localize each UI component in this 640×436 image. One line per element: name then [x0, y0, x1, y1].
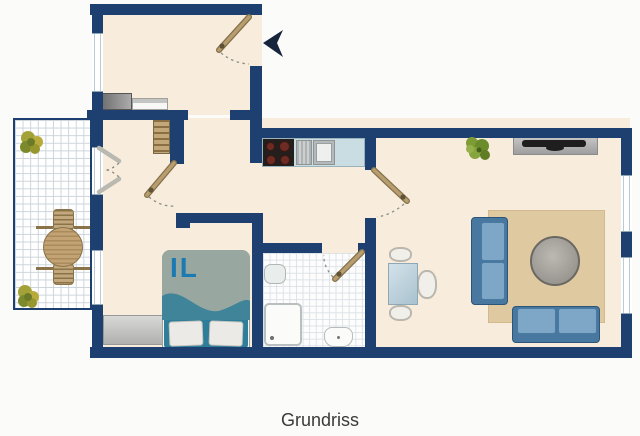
wall-hall-shelf — [170, 112, 184, 164]
burner — [266, 155, 276, 165]
wardrobe — [100, 93, 132, 110]
wall-living-left-lower — [365, 218, 376, 358]
wall-bath-left — [252, 213, 263, 358]
balcony-door-opening — [92, 147, 103, 195]
chair-armrest — [74, 226, 90, 229]
dining-chair — [389, 305, 412, 321]
living-window-south — [621, 257, 632, 314]
garden-table — [43, 227, 83, 267]
sink-basin — [316, 143, 332, 162]
dining-chair — [389, 247, 412, 262]
living-window-north — [621, 175, 632, 232]
floor-plan: IL — [0, 0, 640, 436]
sofa-horizontal-cushion — [517, 308, 556, 334]
bed-monogram: IL — [170, 252, 199, 284]
dresser — [103, 315, 163, 345]
entry-window — [92, 33, 103, 92]
bedroom-window — [92, 250, 103, 305]
shelf — [153, 119, 170, 154]
dining-table — [388, 263, 418, 305]
wall-bath-top — [263, 243, 322, 253]
wall-living-left-upper — [365, 128, 376, 170]
chair-armrest — [74, 267, 90, 270]
entrance-arrow-icon — [263, 30, 283, 57]
wall-entry-bottom-right — [230, 110, 262, 120]
toilet-drain — [337, 336, 340, 339]
wall-living-top — [376, 128, 632, 138]
wall-entry-top — [90, 4, 262, 15]
burner — [280, 155, 290, 165]
chair-armrest — [36, 226, 53, 229]
plan-caption: Grundriss — [0, 410, 640, 431]
chair-armrest — [36, 267, 53, 270]
wall-south — [90, 347, 632, 358]
burner — [279, 141, 290, 152]
wall-bedroom-top-corner — [176, 213, 190, 228]
sofa-vertical-cushion — [481, 222, 505, 261]
sofa-vertical-cushion — [481, 262, 505, 300]
burner — [266, 142, 275, 151]
sink-drainer — [296, 140, 312, 165]
sofa-horizontal-cushion — [558, 308, 597, 334]
tv-stand — [546, 145, 564, 151]
shower-drain — [270, 336, 274, 340]
bed-pillow — [209, 320, 244, 346]
dining-chair — [417, 270, 437, 299]
coffee-table — [530, 236, 580, 286]
bed-pillow — [169, 320, 204, 346]
washbasin — [264, 264, 286, 284]
wall-east — [621, 128, 632, 358]
shower — [264, 303, 302, 346]
sideboard — [132, 98, 168, 110]
wall-kitchen-top — [262, 128, 376, 138]
